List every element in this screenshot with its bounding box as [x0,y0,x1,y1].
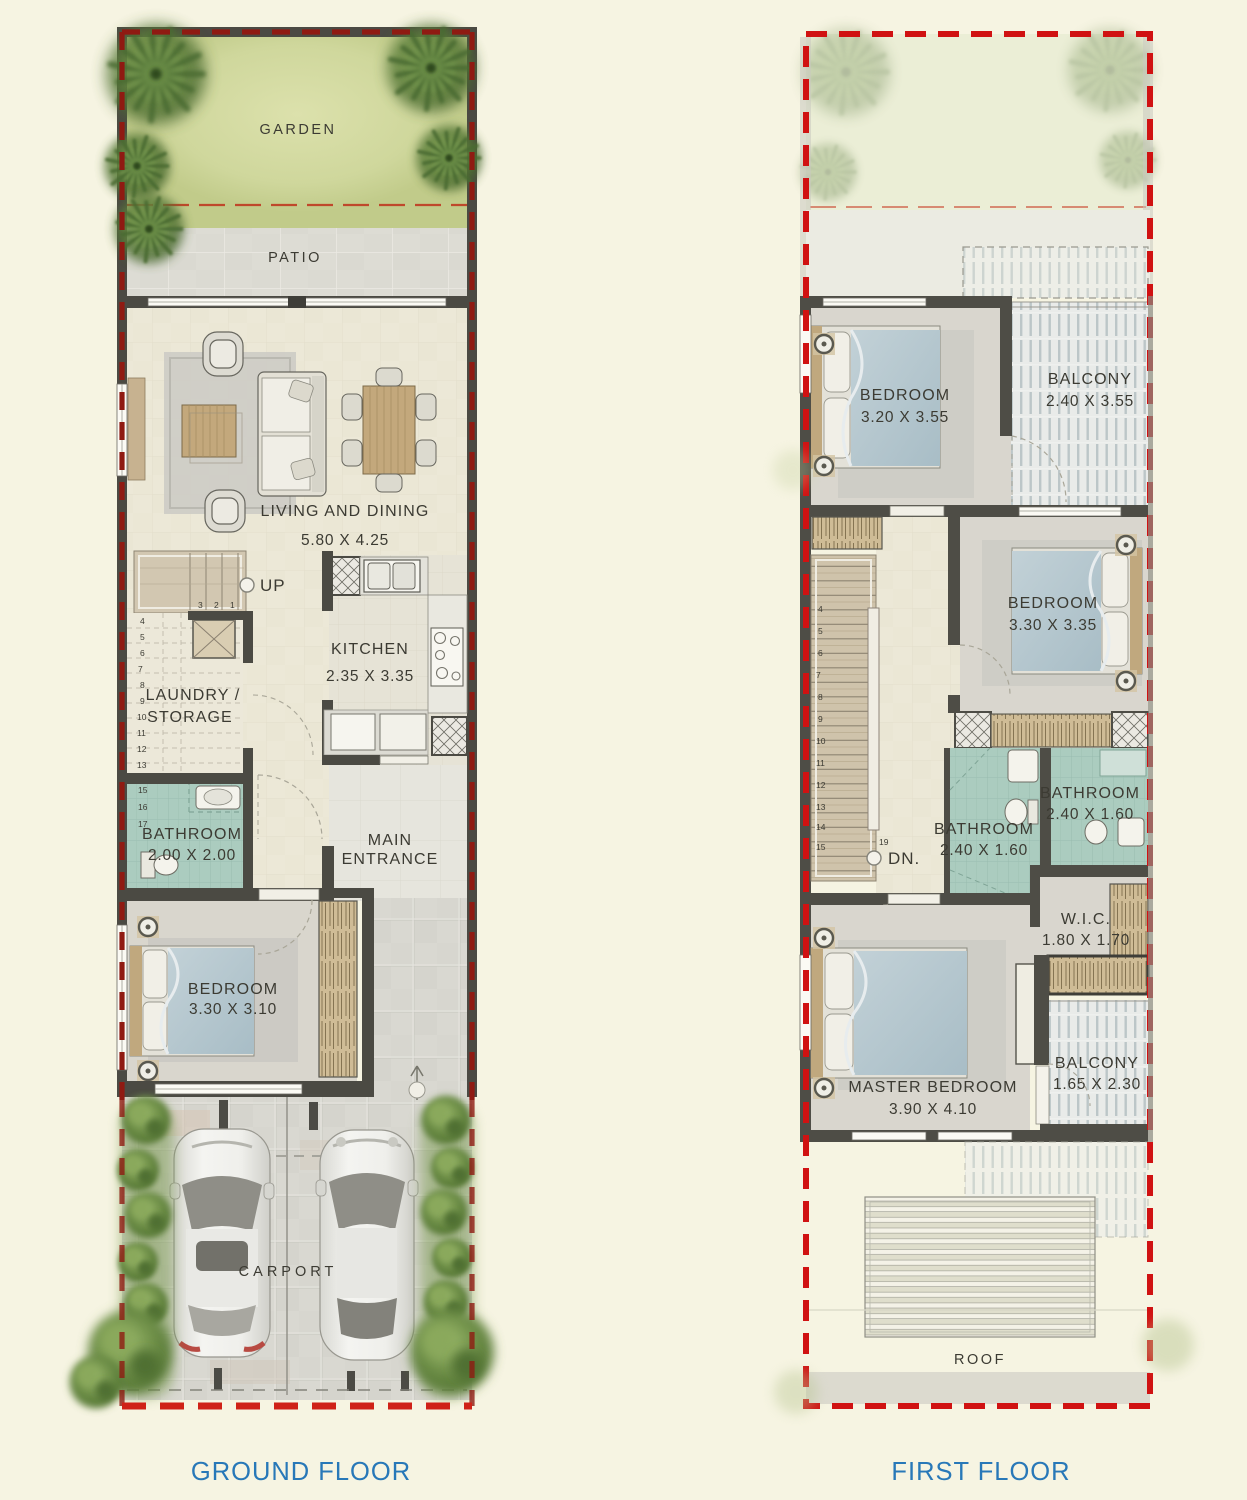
svg-text:13: 13 [137,760,147,770]
svg-text:5: 5 [140,632,145,642]
svg-text:5.80 X 4.25: 5.80 X 4.25 [301,532,389,549]
svg-text:9: 9 [140,696,145,706]
svg-text:13: 13 [816,802,826,812]
svg-text:3.20 X 3.55: 3.20 X 3.55 [861,409,949,426]
svg-text:1: 1 [230,600,235,610]
svg-text:9: 9 [818,714,823,724]
svg-text:3.90 X 4.10: 3.90 X 4.10 [889,1101,977,1118]
svg-text:10: 10 [137,712,147,722]
svg-text:7: 7 [138,664,143,674]
svg-text:CARPORT: CARPORT [239,1264,338,1280]
svg-text:15: 15 [138,785,148,795]
svg-text:12: 12 [137,744,147,754]
svg-text:DN.: DN. [888,849,920,868]
svg-text:4: 4 [140,616,145,626]
svg-text:GARDEN: GARDEN [259,122,336,138]
svg-text:7: 7 [816,670,821,680]
svg-text:STORAGE: STORAGE [147,709,233,726]
svg-text:BATHROOM: BATHROOM [934,821,1034,838]
svg-text:15: 15 [816,842,826,852]
svg-text:BALCONY: BALCONY [1055,1055,1139,1072]
svg-text:6: 6 [818,648,823,658]
svg-text:11: 11 [137,728,146,738]
svg-text:11: 11 [816,758,825,768]
svg-text:8: 8 [140,680,145,690]
svg-text:BEDROOM: BEDROOM [860,387,950,404]
svg-text:14: 14 [816,822,826,832]
svg-text:6: 6 [140,648,145,658]
svg-text:UP: UP [260,576,286,595]
svg-text:2: 2 [214,600,219,610]
svg-text:2.00 X 2.00: 2.00 X 2.00 [148,847,236,864]
svg-text:3: 3 [198,600,203,610]
svg-text:2.40 X 3.55: 2.40 X 3.55 [1046,393,1134,410]
svg-text:MAIN: MAIN [368,832,412,849]
svg-text:8: 8 [818,692,823,702]
svg-text:BATHROOM: BATHROOM [1040,785,1140,802]
svg-text:BEDROOM: BEDROOM [1008,595,1098,612]
svg-text:1.80 X 1.70: 1.80 X 1.70 [1042,932,1130,949]
svg-text:5: 5 [818,626,823,636]
svg-text:FIRST FLOOR: FIRST FLOOR [891,1458,1070,1486]
svg-text:2.35 X 3.35: 2.35 X 3.35 [326,668,414,685]
svg-text:16: 16 [138,802,148,812]
svg-text:ROOF: ROOF [954,1352,1006,1368]
svg-text:12: 12 [816,780,826,790]
svg-text:3.30 X 3.35: 3.30 X 3.35 [1009,617,1097,634]
svg-text:W.I.C.: W.I.C. [1061,911,1111,928]
svg-text:BALCONY: BALCONY [1048,371,1132,388]
svg-text:GROUND FLOOR: GROUND FLOOR [191,1458,411,1486]
svg-text:LIVING AND DINING: LIVING AND DINING [261,503,430,520]
svg-text:BATHROOM: BATHROOM [142,826,242,843]
svg-text:19: 19 [879,837,889,847]
svg-text:KITCHEN: KITCHEN [331,641,409,658]
svg-text:PATIO: PATIO [268,250,322,266]
svg-text:3.30 X 3.10: 3.30 X 3.10 [189,1001,277,1018]
svg-text:MASTER BEDROOM: MASTER BEDROOM [848,1079,1017,1096]
svg-text:BEDROOM: BEDROOM [188,981,278,998]
svg-text:2.40 X 1.60: 2.40 X 1.60 [940,842,1028,859]
svg-text:10: 10 [816,736,826,746]
svg-text:1.65 X 2.30: 1.65 X 2.30 [1053,1076,1141,1093]
svg-text:2.40 X 1.60: 2.40 X 1.60 [1046,806,1134,823]
svg-text:LAUNDRY /: LAUNDRY / [146,687,241,704]
svg-text:ENTRANCE: ENTRANCE [342,851,439,868]
svg-text:4: 4 [818,604,823,614]
